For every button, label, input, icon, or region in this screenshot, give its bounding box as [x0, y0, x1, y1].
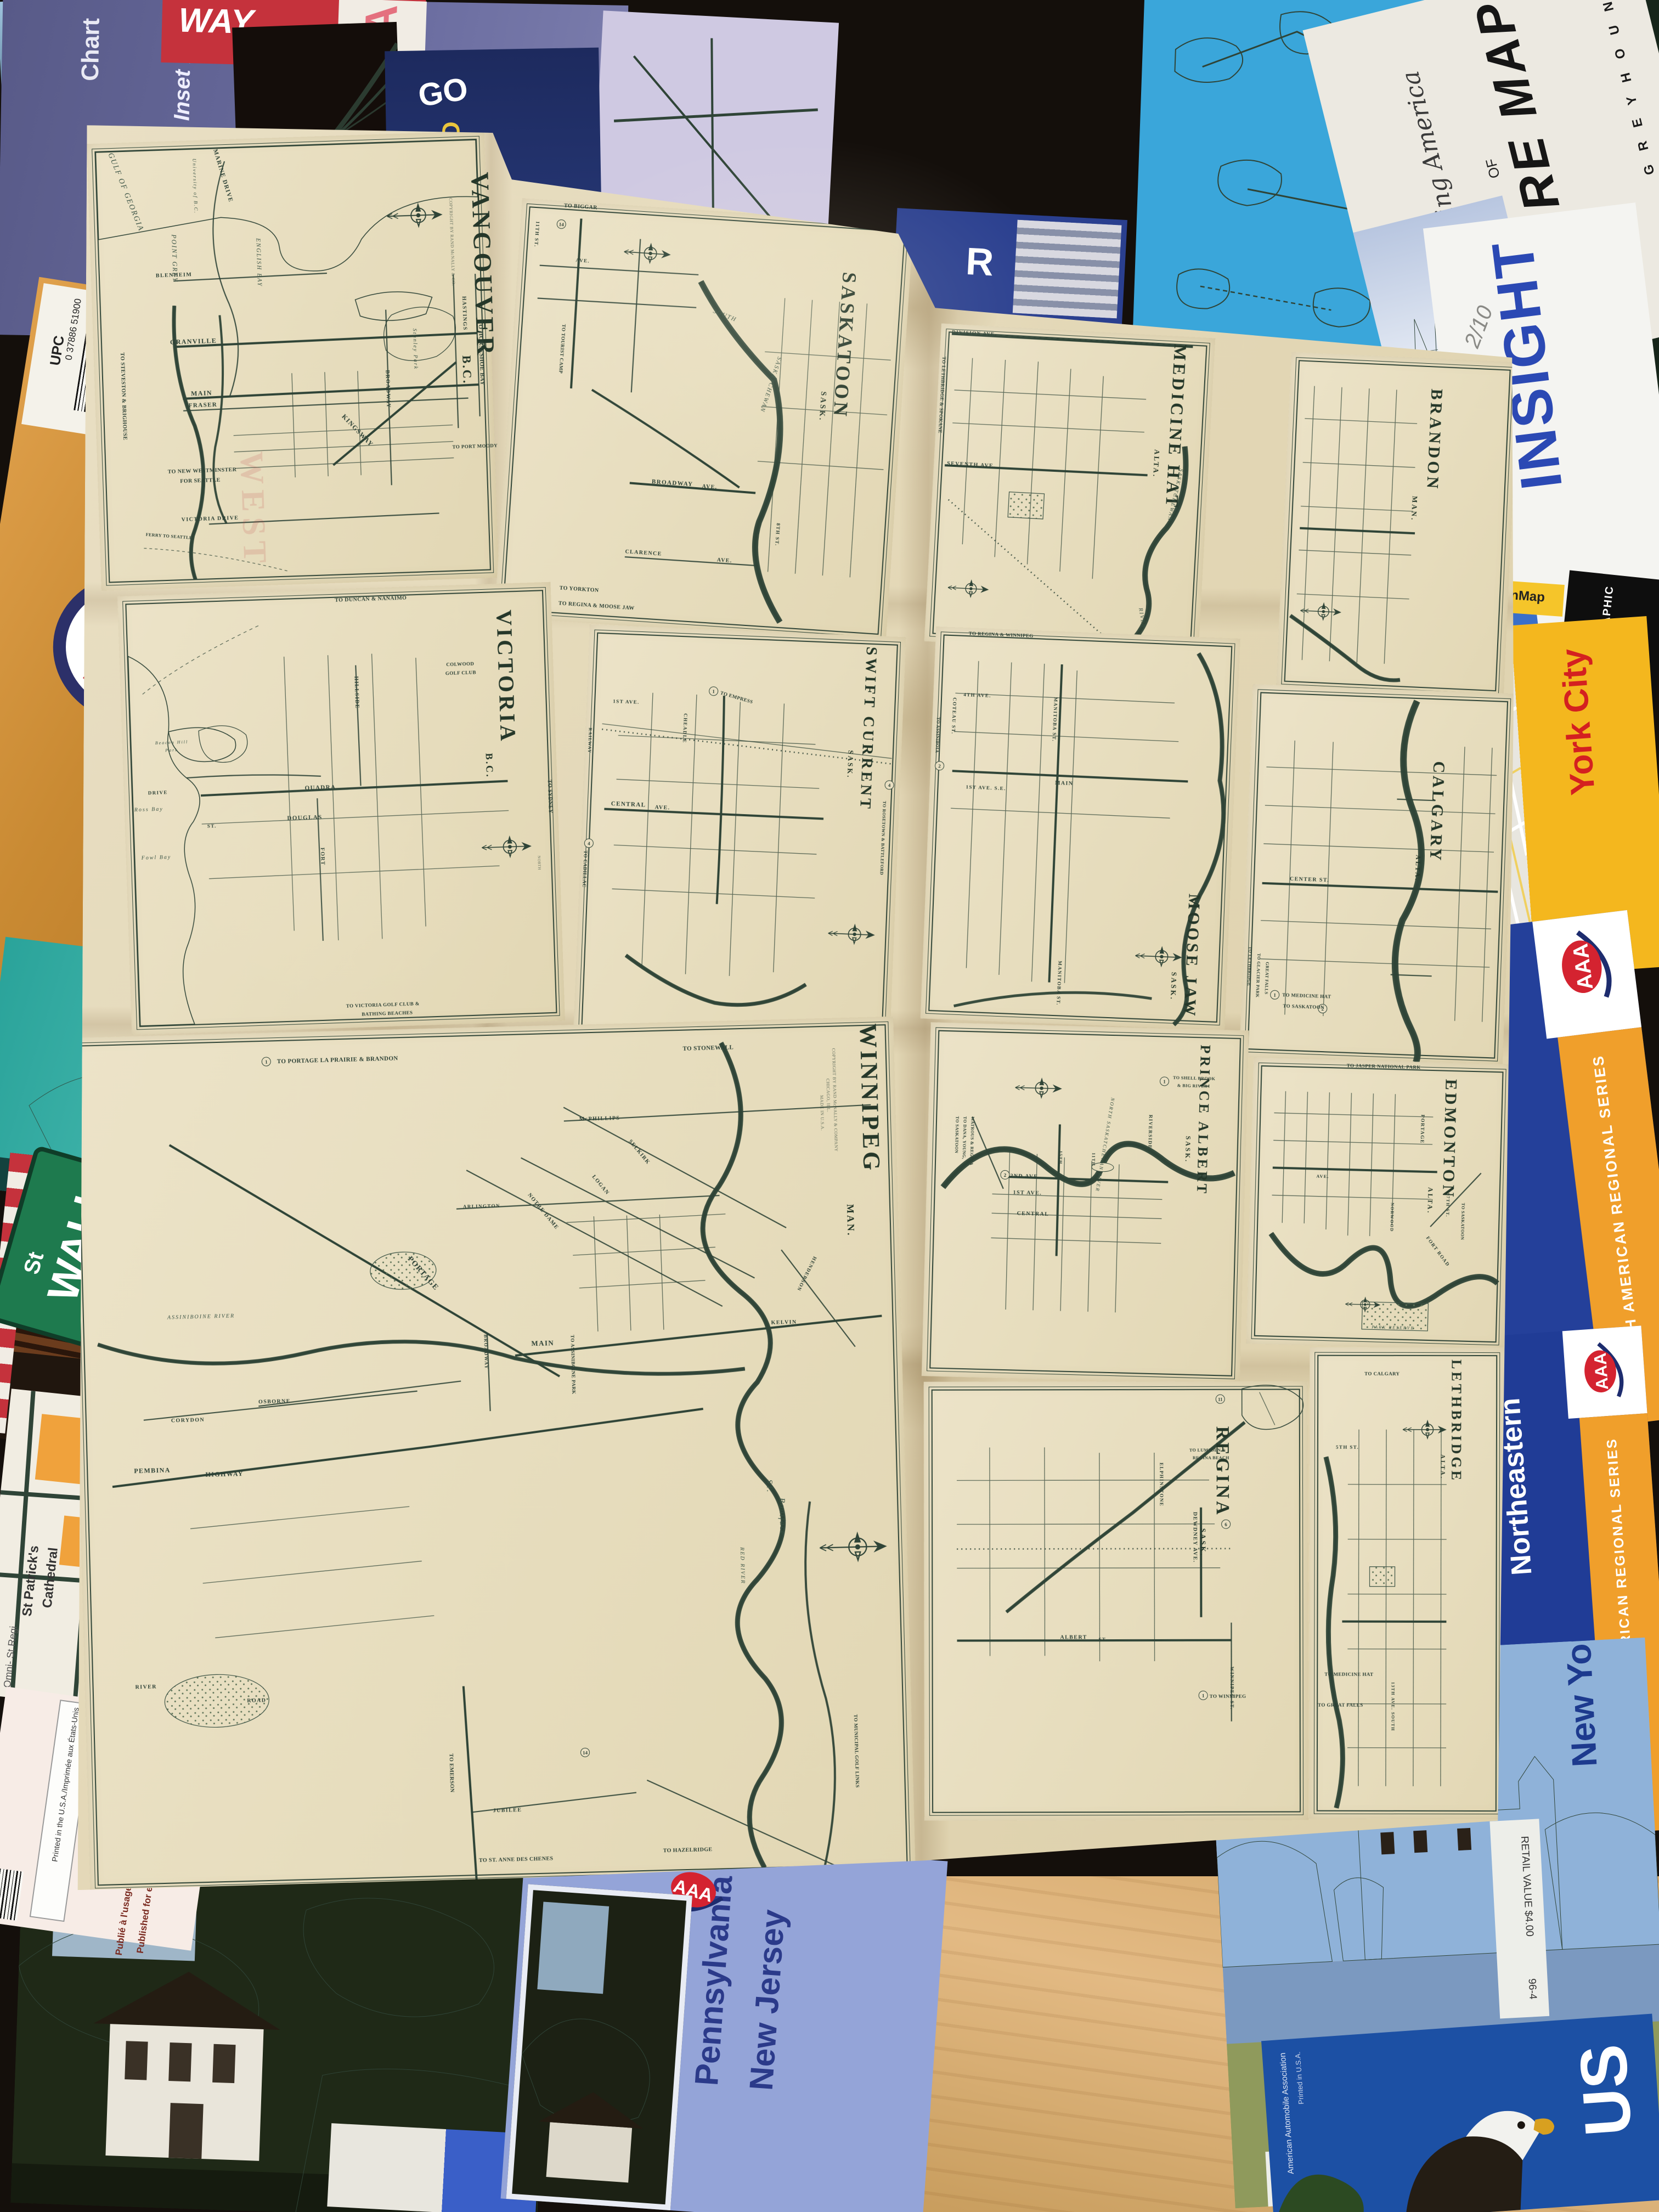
city-panel-brandon: BRANDONMAN.: [1276, 352, 1519, 699]
victoria-label-park: Park: [165, 748, 178, 753]
vancouver-label-ferry-to-seattle: FERRY TO SEATTLE: [145, 533, 192, 540]
victoria-label-hillside: HILLSIDE: [353, 676, 359, 709]
regina-label-sask: SASK.: [1199, 1528, 1207, 1557]
calgary-label-to-medicine-hat: TO MEDICINE HAT: [1282, 992, 1331, 1000]
rand-mcnally-city-maps-sheet: VANCOUVERB.C.COPYRIGHT BY RAND McNALLY &…: [72, 122, 1520, 1898]
njpa-title1: New Jersey: [745, 1909, 791, 2092]
winnipeg-label-to-st-anne-des-chenes: TO ST. ANNE DES CHENES: [479, 1856, 554, 1864]
princealbert-label-prince-albert: PRINCE ALBERT: [1194, 1045, 1214, 1196]
saskatoon-label-saskatchewan: SASKATCHEWAN: [758, 356, 782, 413]
greyhound-of-label: OF: [1483, 157, 1502, 180]
moosejaw-label-manitoba-st: MANITOBA ST.: [1056, 961, 1063, 1006]
winnipeg-label-to-emerson: TO EMERSON: [448, 1753, 454, 1793]
lethbridge-label-13th-ave-south: 13TH AVE. SOUTH: [1390, 1682, 1395, 1731]
victoria-label-to-duncan-nanaimo: TO DUNCAN & NANAIMO: [335, 595, 407, 603]
njpa-inset-art: [512, 1890, 686, 2204]
winnipeg-label-notre-dame: NOTRE DAME: [526, 1193, 560, 1231]
moosejaw-label-1st-ave-s-e: 1ST AVE. S.E.: [966, 785, 1006, 791]
edmonton-label-97th-st: 97TH ST.: [1445, 1193, 1451, 1217]
city-panel-swiftcurrent: SWIFT CURRENTSASK.4TO ROSETOWN & BATTLEF…: [573, 624, 906, 1047]
victoria-label-st: ST.: [207, 823, 217, 829]
regina-label-albert: ALBERT: [1060, 1635, 1087, 1641]
vancouver-label-to-horseshoe-bay: TO HORSESHOE BAY: [477, 320, 485, 386]
winnipeg-label-to-assiniboine-park: TO ASSINIBOINE PARK: [569, 1335, 576, 1395]
moosejaw-label-4th-ave: 4TH AVE.: [963, 692, 991, 698]
aaa-logo: AAA: [1552, 922, 1619, 1011]
lethbridge-label-alta: ALTA.: [1439, 1454, 1446, 1480]
ny-code: 96-4: [1526, 1978, 1539, 2000]
vancouver-label-marine-drive: MARINE DRIVE: [212, 149, 234, 204]
vancouver-label-main: MAIN: [191, 390, 212, 397]
victoria-label-quadra: QUADRA: [304, 785, 336, 792]
edmonton-label-to-saskatoon: TO SASKATOON: [1459, 1203, 1465, 1240]
vancouver-label-to-port-moody: TO PORT MOODY: [452, 443, 498, 450]
vancouver-labels: VANCOUVERB.C.COPYRIGHT BY RAND McNALLY &…: [87, 131, 499, 591]
victoria-label-colwood: COLWOOD: [446, 661, 474, 667]
saskatoon-label-to-biggar: TO BIGGAR: [564, 203, 597, 211]
vancouver-label-broadway: BROADWAY: [384, 370, 391, 408]
winnipeg-label-chicago-ill: CHICAGO, ILL.: [825, 1079, 831, 1113]
lethbridge-labels: LETHBRIDGEALTA.TO CALGARY5TH ST.13TH AVE…: [1309, 1347, 1505, 1820]
princealbert-label-2: 2: [1000, 1170, 1009, 1180]
edmonton-label-fort-road: FORT ROAD: [1425, 1235, 1451, 1268]
princealbert-label-2nd-ave: 2ND AVE.: [1010, 1173, 1040, 1180]
city-panel-winnipeg: WINNIPEGMAN.COPYRIGHT BY RAND McNALLY & …: [68, 1017, 916, 1894]
aaa-ne-logo-block: AAA: [1562, 1325, 1647, 1419]
calgary-label-1: 1: [1270, 990, 1280, 1000]
medicinehat-labels: MEDICINE HATALTA.TO LETHBRIDGE & SPOKANE…: [924, 324, 1216, 656]
regina-label-6: 6: [1221, 1520, 1231, 1529]
winnipeg-label-to-portage-la-prairie-brandon: TO PORTAGE LA PRAIRIE & BRANDON: [277, 1056, 398, 1065]
winnipeg-label-henderson: HENDERSON: [795, 1256, 817, 1293]
regina-label-to-winnipeg: TO WINNIPEG: [1210, 1694, 1246, 1700]
insight-pencil-note: 2/10: [1461, 303, 1497, 351]
regina-labels: REGINASASK.11TO LUMSDEN &REGINA BEACHDEW…: [924, 1381, 1308, 1820]
moosejaw-label-main: MAIN: [1055, 781, 1074, 787]
princealbert-label-11th: 11TH: [1091, 1153, 1096, 1166]
swiftcurrent-label-to-rosetown-battleford: TO ROSETOWN & BATTLEFORD: [879, 801, 887, 875]
swiftcurrent-label-4: 4: [584, 838, 594, 848]
upc-digits: 0 37886 51900: [64, 298, 83, 361]
vancouver-label-victoria-drive: VICTORIA DRIVE: [182, 516, 239, 523]
ny-title: New York: [1557, 1638, 1605, 1768]
victoria-label-ross-bay: Ross Bay: [134, 806, 163, 813]
calgary-label-to-saskatoon: TO SASKATOON: [1283, 1003, 1324, 1010]
moosejaw-label-manitoba-st: MANITOBA ST.: [1051, 697, 1058, 742]
lethbridge-label-to-calgary: TO CALGARY: [1364, 1372, 1400, 1377]
edmonton-label-to-jasper-national-park: TO JASPER NATIONAL PARK: [1347, 1063, 1421, 1070]
calgary-label-calgary: CALGARY: [1426, 761, 1447, 864]
victoria-label-beacon-hill: Beacon Hill: [155, 740, 189, 746]
saskatoon-label-8th-st: 8TH ST.: [774, 523, 781, 546]
saskatoon-label-ave: AVE.: [716, 557, 732, 564]
medicinehat-label-seventh-ave: SEVENTH AVE.: [947, 461, 996, 469]
saskatoon-label-to-regina-moose-jaw: TO REGINA & MOOSE JAW: [558, 601, 635, 612]
princealbert-label-1st-ave: 1ST AVE.: [1013, 1190, 1042, 1197]
medicinehat-label-alta: ALTA.: [1152, 449, 1160, 478]
saskatoon-label-11th-st: 11TH ST.: [533, 221, 540, 247]
moosejaw-label-moose-jaw: MOOSE JAW: [1181, 894, 1203, 1019]
usa-title-label: US: [1570, 2042, 1641, 2138]
vancouver-label-kingsway: KINGSWAY: [341, 413, 375, 448]
members-printed: Printed in the U.S.A./Imprimée aux États…: [50, 1707, 80, 1862]
grill-photo: [1013, 220, 1122, 319]
regina-label-regina-beach: REGINA BEACH: [1193, 1456, 1229, 1461]
saskatoon-label-sask: SASK.: [817, 391, 827, 422]
vancouver-label-to-steveston-brighouse: TO STEVESTON & BRIGHOUSE: [119, 352, 128, 440]
princealbert-label-to-saskatoon: TO SASKATOON: [953, 1116, 959, 1153]
victoria-label-fort: FORT: [319, 848, 325, 866]
vancouver-label-west: WEST: [234, 451, 273, 569]
swiftcurrent-label-cheadle: CHEADLE: [681, 713, 688, 743]
brandon-labels: BRANDONMAN.: [1276, 352, 1519, 699]
swiftcurrent-labels: SWIFT CURRENTSASK.4TO ROSETOWN & BATTLEF…: [573, 624, 906, 1047]
calgary-label-alta: ALTA.: [1414, 855, 1421, 882]
winnipeg-label-portage: PORTAGE: [405, 1255, 439, 1293]
victoria-label-b-c: B.C.: [484, 753, 495, 778]
winnipeg-label-14: 14: [580, 1748, 590, 1757]
city-panel-lethbridge: LETHBRIDGEALTA.TO CALGARY5TH ST.13TH AVE…: [1309, 1347, 1505, 1820]
swiftcurrent-label-4: 4: [884, 780, 894, 790]
city-panel-saskatoon: SASKATOONSASK.TO BIGGAR1411TH ST.AVE.TO …: [494, 198, 913, 643]
brandon-label-man: MAN.: [1410, 496, 1419, 522]
princealbert-label-sask: SASK.: [1184, 1136, 1192, 1163]
saskatoon-label-to-yorkton: TO YORKTON: [559, 585, 599, 594]
saskatoon-labels: SASKATOONSASK.TO BIGGAR1411TH ST.AVE.TO …: [494, 198, 913, 643]
saskatoon-label-broadway: BROADWAY: [652, 479, 693, 488]
lethbridge-label-to-medicine-hat: TO MEDICINE HAT: [1324, 1672, 1373, 1678]
calgary-label-center-st: CENTER ST.: [1290, 877, 1330, 884]
natgeo-tag-label: nMap: [1510, 589, 1545, 604]
moosejaw-label-sask: SASK.: [1169, 972, 1178, 1001]
city-panel-princealbert: PRINCE ALBERTSASK.1TO SHELL BROOK& BIG R…: [922, 1022, 1249, 1384]
winnipeg-label-to-municipal-golf-links: TO MUNICIPAL GOLF LINKS: [853, 1714, 860, 1788]
victoria-label-bathing-beaches: BATHING BEACHES: [362, 1011, 413, 1018]
princealbert-label-north-saskatchewan-river: NORTH SASKATCHEWAN RIVER: [1094, 1097, 1115, 1192]
moosejaw-label-2: 2: [935, 761, 945, 771]
winnipeg-label-mcphillips: McPHILLIPS: [579, 1116, 620, 1122]
princealbert-label-big-river: & BIG RIVER: [1177, 1084, 1208, 1089]
greyhound-brand-label: G R E Y H O U N D: [1594, 0, 1657, 176]
moosejaw-label-to-assiniboia: TO ASSINIBOIA: [934, 717, 940, 753]
winnipeg-label-pembina: PEMBINA: [134, 1466, 171, 1474]
victoria-label-victoria: VICTORIA: [492, 610, 520, 744]
winnipeg-label-1: 1: [262, 1057, 271, 1066]
saskatoon-label-south: SOUTH: [712, 308, 737, 324]
swiftcurrent-label-to-empress: TO EMPRESS: [720, 691, 754, 705]
blue-r-letter: R: [965, 242, 995, 282]
winnipeg-label-man: MAN.: [845, 1204, 856, 1237]
regina-label-regina: REGINA: [1212, 1426, 1232, 1517]
edmonton-label-norwood: NORWOOD: [1389, 1203, 1395, 1232]
regina-label-st: ST.: [1098, 1637, 1108, 1642]
city-panel-edmonton: EDMONTONALTA.TO JASPER NATIONAL PARKPORT…: [1246, 1058, 1511, 1351]
swiftcurrent-label-1st-ave: 1ST AVE.: [613, 699, 640, 705]
regina-label-11: 11: [1216, 1395, 1225, 1404]
swiftcurrent-label-1: 1: [709, 686, 719, 696]
regina-label-elphinstone: ELPHINSTONE: [1159, 1463, 1164, 1506]
vancouver-label-copyright-by-rand-mcnally-co: COPYRIGHT BY RAND McNALLY & CO.: [448, 198, 455, 286]
vancouver-label-hastings: HASTINGS: [460, 296, 467, 331]
regina-label-to-lumsden: TO LUMSDEN &: [1189, 1448, 1226, 1453]
vancouver-label-blenheim: BLENHEIM: [156, 272, 193, 279]
city-panel-moosejaw: MOOSE JAWSASK.TO REGINA & WINNIPEG4TH AV…: [921, 627, 1240, 1031]
vancouver-label-english-bay: ENGLISH BAY: [255, 238, 262, 287]
swiftcurrent-label-to-cadillac: TO CADILLAC: [582, 850, 588, 888]
winnipeg-label-red-river: RED RIVER: [738, 1547, 745, 1584]
princealbert-label-watrous-regina: WATROUS & REGINA: [969, 1116, 975, 1165]
victoria-label-north: NORTH: [537, 856, 541, 870]
victoria-label-fowl-bay: Fowl Bay: [142, 855, 172, 861]
edmonton-label-ave: AVE.: [1316, 1175, 1329, 1180]
princealbert-label-1: 1: [1160, 1076, 1169, 1086]
edmonton-label-park-reserve: PARK RESERVE: [1372, 1325, 1414, 1330]
go-label: GO: [416, 73, 470, 112]
victoria-label-drive: DRIVE: [148, 790, 168, 796]
vancouver-label-university-of-b-c: University of B.C.: [191, 159, 199, 214]
regina-label-winnipeg-st: WINNIPEG ST.: [1229, 1667, 1235, 1710]
upc-label: UPC: [48, 335, 66, 366]
edmonton-label-portage: PORTAGE: [1419, 1114, 1425, 1144]
lethbridge-label-5th-st: 5TH ST.: [1336, 1445, 1359, 1451]
usa-printed-label: Printed in U.S.A.: [1294, 2051, 1305, 2104]
swiftcurrent-label-railway: RAILWAY: [586, 727, 592, 753]
winnipeg-labels: WINNIPEGMAN.COPYRIGHT BY RAND McNALLY & …: [68, 1017, 916, 1894]
moosejaw-labels: MOOSE JAWSASK.TO REGINA & WINNIPEG4TH AV…: [921, 627, 1240, 1031]
city-panel-vancouver: VANCOUVERB.C.COPYRIGHT BY RAND McNALLY &…: [87, 131, 499, 591]
saskatoon-label-14: 14: [556, 219, 566, 229]
regina-label-1: 1: [1199, 1691, 1208, 1700]
aaa-us-logo-block: AAA: [1532, 910, 1641, 1039]
winnipeg-label-logan: LOGAN: [590, 1174, 610, 1196]
princealbert-label-to-shell-brook: TO SHELL BROOK: [1173, 1076, 1215, 1081]
swiftcurrent-label-sask: SASK.: [846, 750, 855, 779]
swiftcurrent-label-ave: AVE.: [654, 805, 670, 811]
swiftcurrent-label-swift-current: SWIFT CURRENT: [857, 646, 879, 811]
members-barcode: [0, 1866, 24, 1921]
winnipeg-label-corydon: CORYDON: [171, 1418, 205, 1424]
edmonton-labels: EDMONTONALTA.TO JASPER NATIONAL PARKPORT…: [1246, 1058, 1511, 1351]
eagle-art: [1373, 2053, 1570, 2212]
lethbridge-label-lethbridge: LETHBRIDGE: [1449, 1359, 1464, 1483]
cover-nj-pa: New Jersey Pennsylvania AAA: [501, 1832, 948, 2212]
winnipeg-label-copyright-by-rand-mcnally-company: COPYRIGHT BY RAND McNALLY & COMPANY: [831, 1048, 838, 1152]
princealbert-label-riverside: RIVERSIDE: [1147, 1115, 1153, 1149]
njpa-photo-inset: [506, 1884, 692, 2210]
winnipeg-label-winnipeg: WINNIPEG: [855, 1023, 884, 1173]
princealbert-label-central: CENTRAL: [1017, 1211, 1049, 1218]
atlas-chart-label: Chart: [78, 18, 104, 82]
edmonton-label-alta: ALTA.: [1426, 1187, 1434, 1215]
saskatoon-label-ave: AVE.: [702, 484, 718, 490]
victoria-label-to-sydney: TO SYDNEY: [546, 780, 553, 814]
medicinehat-label-division-ave: DIVISION AVE.: [952, 330, 997, 337]
winnipeg-label-boniface: Boniface: [777, 1498, 787, 1536]
winnipeg-label-river: RIVER: [135, 1684, 156, 1691]
natgeo-title-label: York City: [1556, 647, 1601, 796]
vancouver-label-stanley-park: Stanley Park: [411, 329, 418, 370]
saskatoon-label-saskatoon: SASKATOON: [829, 272, 859, 420]
winnipeg-label-main: MAIN: [531, 1339, 554, 1347]
brandon-label-brandon: BRANDON: [1424, 388, 1446, 492]
victoria-label-golf-club: GOLF CLUB: [445, 670, 476, 676]
vancouver-label-gulf-of-georgia: GULF OF GEORGIA: [106, 152, 145, 233]
victoria-label-to-victoria-golf-club: TO VICTORIA GOLF CLUB &: [346, 1001, 420, 1009]
city-panel-calgary: CALGARYALTA.CENTER ST.TO LETHBRIDGETO GL…: [1239, 684, 1516, 1066]
winnipeg-label-jubilee: JUBILEE: [493, 1808, 522, 1814]
winnipeg-label-selkirk: SELKIRK: [627, 1139, 651, 1166]
calgary-labels: CALGARYALTA.CENTER ST.TO LETHBRIDGETO GL…: [1239, 684, 1516, 1066]
winnipeg-label-kelvin: KELVIN: [771, 1319, 797, 1326]
saskatoon-label-ave: AVE.: [575, 258, 590, 264]
city-panel-medicinehat: MEDICINE HATALTA.TO LETHBRIDGE & SPOKANE…: [924, 324, 1216, 656]
winnipeg-label-road: ROAD: [247, 1698, 266, 1704]
cover-usa-eagle: US American Automobile Association Print…: [1261, 2014, 1659, 2212]
winnipeg-label-highway: HIGHWAY: [205, 1470, 244, 1478]
winnipeg-label-to-stonewall: TO STONEWALL: [682, 1045, 733, 1052]
princealbert-labels: PRINCE ALBERTSASK.1TO SHELL BROOK& BIG R…: [922, 1022, 1249, 1384]
princealbert-label-15th: 15TH: [1058, 1150, 1063, 1164]
medicinehat-label-river: RIVER: [1137, 607, 1146, 629]
princealbert-label-to-dana-young: TO DANA, YOUNG,: [961, 1116, 967, 1159]
winnipeg-label-assiniboine-river: ASSINIBOINE RIVER: [167, 1313, 235, 1321]
lethbridge-label-to-great-falls: TO GREAT FALLS: [1318, 1703, 1363, 1708]
moosejaw-label-coteau-st: COTEAU ST.: [950, 697, 957, 735]
svg-text:AAA: AAA: [1590, 1352, 1612, 1391]
vancouver-label-b-c: B.C.: [460, 355, 474, 385]
calgary-label-to-lethbridge: TO LETHBRIDGE: [1246, 946, 1252, 986]
winnipeg-label-broadway: BROADWAY: [483, 1334, 489, 1369]
winnipeg-label-st: ST.: [764, 1480, 773, 1493]
edmonton-label-edmonton: EDMONTON: [1439, 1079, 1459, 1200]
victoria-label-douglas: DOUGLAS: [287, 815, 323, 822]
vancouver-label-to-new-westminster: TO NEW WESTMINSTER: [168, 467, 237, 476]
vancouver-label-granville: GRANVILLE: [170, 337, 217, 346]
aaa-logo: AAA: [1578, 1337, 1629, 1406]
saskatoon-label-clarence: CLARENCE: [625, 549, 662, 557]
saskatoon-label-to-tourist-camp: TO TOURIST CAMP: [558, 324, 566, 374]
moosejaw-label-to-regina-winnipeg: TO REGINA & WINNIPEG: [969, 631, 1034, 639]
photo-canvas: Chart Inset Map Tri Cities (Pasco/Kennew…: [0, 0, 1659, 2212]
medicinehat-label-to-lethbridge-spokane: TO LETHBRIDGE & SPOKANE: [937, 357, 946, 434]
vancouver-label-for-seattle: FOR SEATTLE: [180, 478, 221, 485]
wall-st-label: St: [20, 1250, 47, 1277]
victoria-labels: VICTORIAB.C.COLWOODGOLF CLUBTO DUNCAN & …: [117, 582, 565, 1035]
winnipeg-label-osborne: OSBORNE: [258, 1399, 291, 1406]
regina-label-dewdney-ave: DEWDNEY AVE.: [1192, 1512, 1198, 1563]
calgary-label-to-glacier-park: TO GLACIER PARK: [1255, 953, 1261, 998]
city-panel-regina: REGINASASK.11TO LUMSDEN &REGINA BEACHDEW…: [924, 1381, 1308, 1820]
city-panel-victoria: VICTORIAB.C.COLWOODGOLF CLUBTO DUNCAN & …: [117, 582, 565, 1035]
vancouver-label-fraser: FRASER: [189, 402, 218, 409]
swiftcurrent-label-central: CENTRAL: [611, 801, 646, 809]
winnipeg-label-to-hazelridge: TO HAZELRIDGE: [663, 1847, 713, 1854]
calgary-label-great-falls: GREAT FALLS: [1263, 962, 1269, 995]
winnipeg-label-made-in-u-s-a: MADE IN U.S.A.: [819, 1095, 825, 1131]
winnipeg-label-arlington: ARLINGTON: [463, 1204, 500, 1210]
